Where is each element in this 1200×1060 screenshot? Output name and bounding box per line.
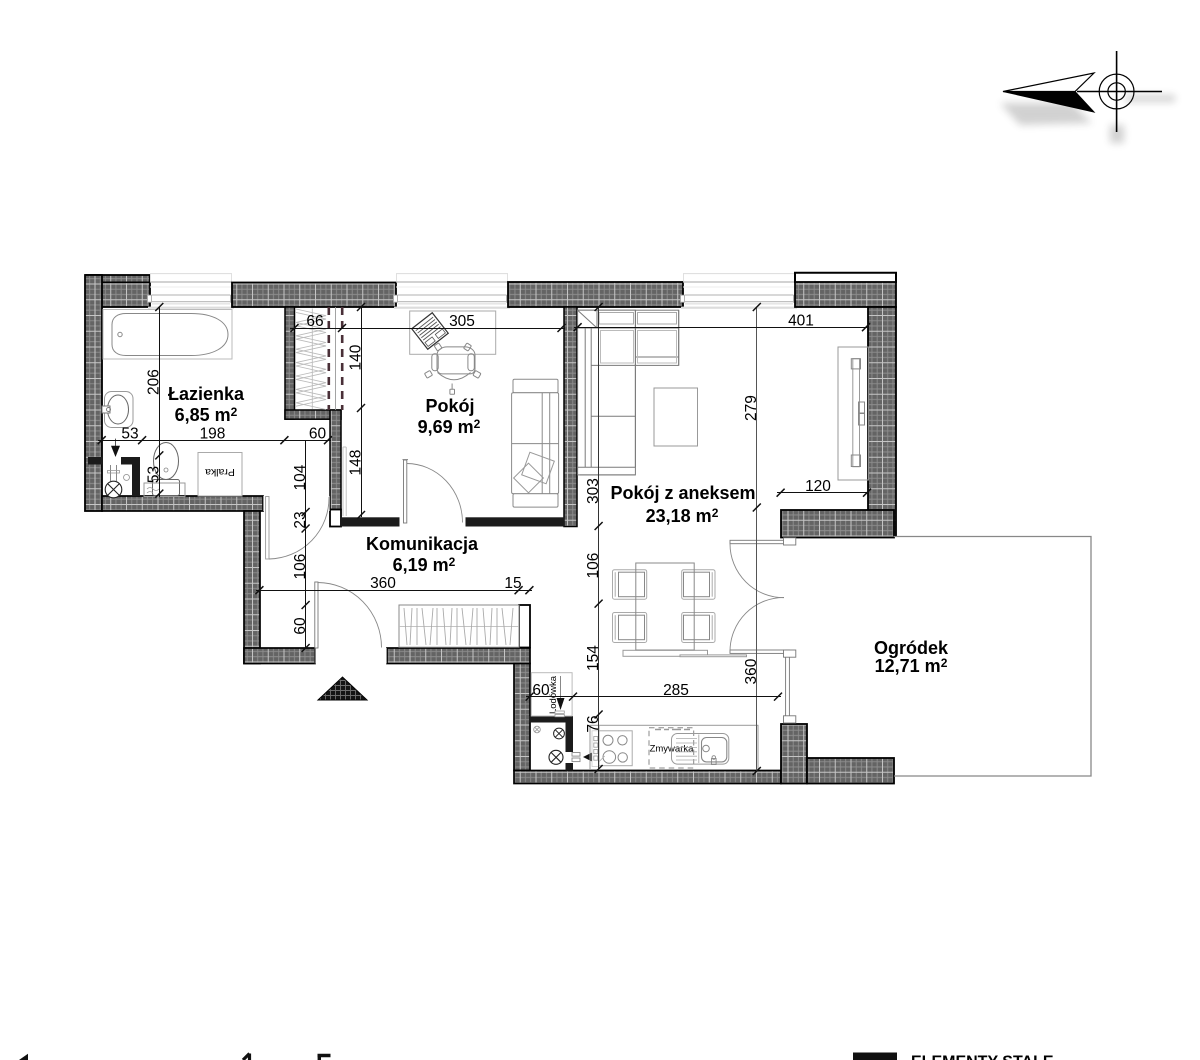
svg-text:Komunikacja: Komunikacja xyxy=(366,534,479,554)
svg-text:305: 305 xyxy=(449,313,475,330)
svg-text:154: 154 xyxy=(585,645,602,671)
svg-text:303: 303 xyxy=(585,478,602,504)
svg-text:279: 279 xyxy=(743,395,760,421)
svg-text:66: 66 xyxy=(306,313,323,330)
svg-text:Ogródek: Ogródek xyxy=(874,638,949,658)
svg-text:106: 106 xyxy=(585,553,602,579)
svg-text:23,18 m2: 23,18 m2 xyxy=(646,506,719,526)
svg-text:Pralka: Pralka xyxy=(205,466,235,478)
svg-text:106: 106 xyxy=(292,554,309,580)
svg-text:360: 360 xyxy=(743,658,760,684)
svg-text:53: 53 xyxy=(121,425,138,442)
svg-text:Pokój z aneksem: Pokój z aneksem xyxy=(610,483,755,503)
svg-text:140: 140 xyxy=(347,344,364,370)
svg-text:148: 148 xyxy=(347,450,364,476)
svg-text:6,19 m2: 6,19 m2 xyxy=(393,555,456,575)
svg-text:ELEMENTY STALE: ELEMENTY STALE xyxy=(911,1054,1054,1060)
svg-text:53: 53 xyxy=(146,466,163,483)
svg-text:9,69 m2: 9,69 m2 xyxy=(418,417,481,437)
svg-text:76: 76 xyxy=(585,715,602,732)
svg-text:206: 206 xyxy=(146,369,163,395)
svg-text:198: 198 xyxy=(200,425,226,442)
svg-text:60: 60 xyxy=(309,425,327,442)
svg-text:6,85 m2: 6,85 m2 xyxy=(175,405,238,425)
svg-text:401: 401 xyxy=(788,312,814,329)
svg-text:Pokój: Pokój xyxy=(425,396,474,416)
svg-text:15: 15 xyxy=(504,575,521,592)
svg-text:60: 60 xyxy=(292,617,309,635)
svg-text:285: 285 xyxy=(663,682,689,699)
svg-text:360: 360 xyxy=(370,575,396,592)
svg-text:12,71 m2: 12,71 m2 xyxy=(875,656,948,676)
svg-text:23: 23 xyxy=(292,511,309,528)
svg-text:60: 60 xyxy=(532,682,550,699)
svg-text:Lodówka: Lodówka xyxy=(548,675,559,714)
svg-text:120: 120 xyxy=(805,478,831,495)
svg-text:104: 104 xyxy=(292,464,309,490)
svg-text:Łazienka: Łazienka xyxy=(168,384,245,404)
